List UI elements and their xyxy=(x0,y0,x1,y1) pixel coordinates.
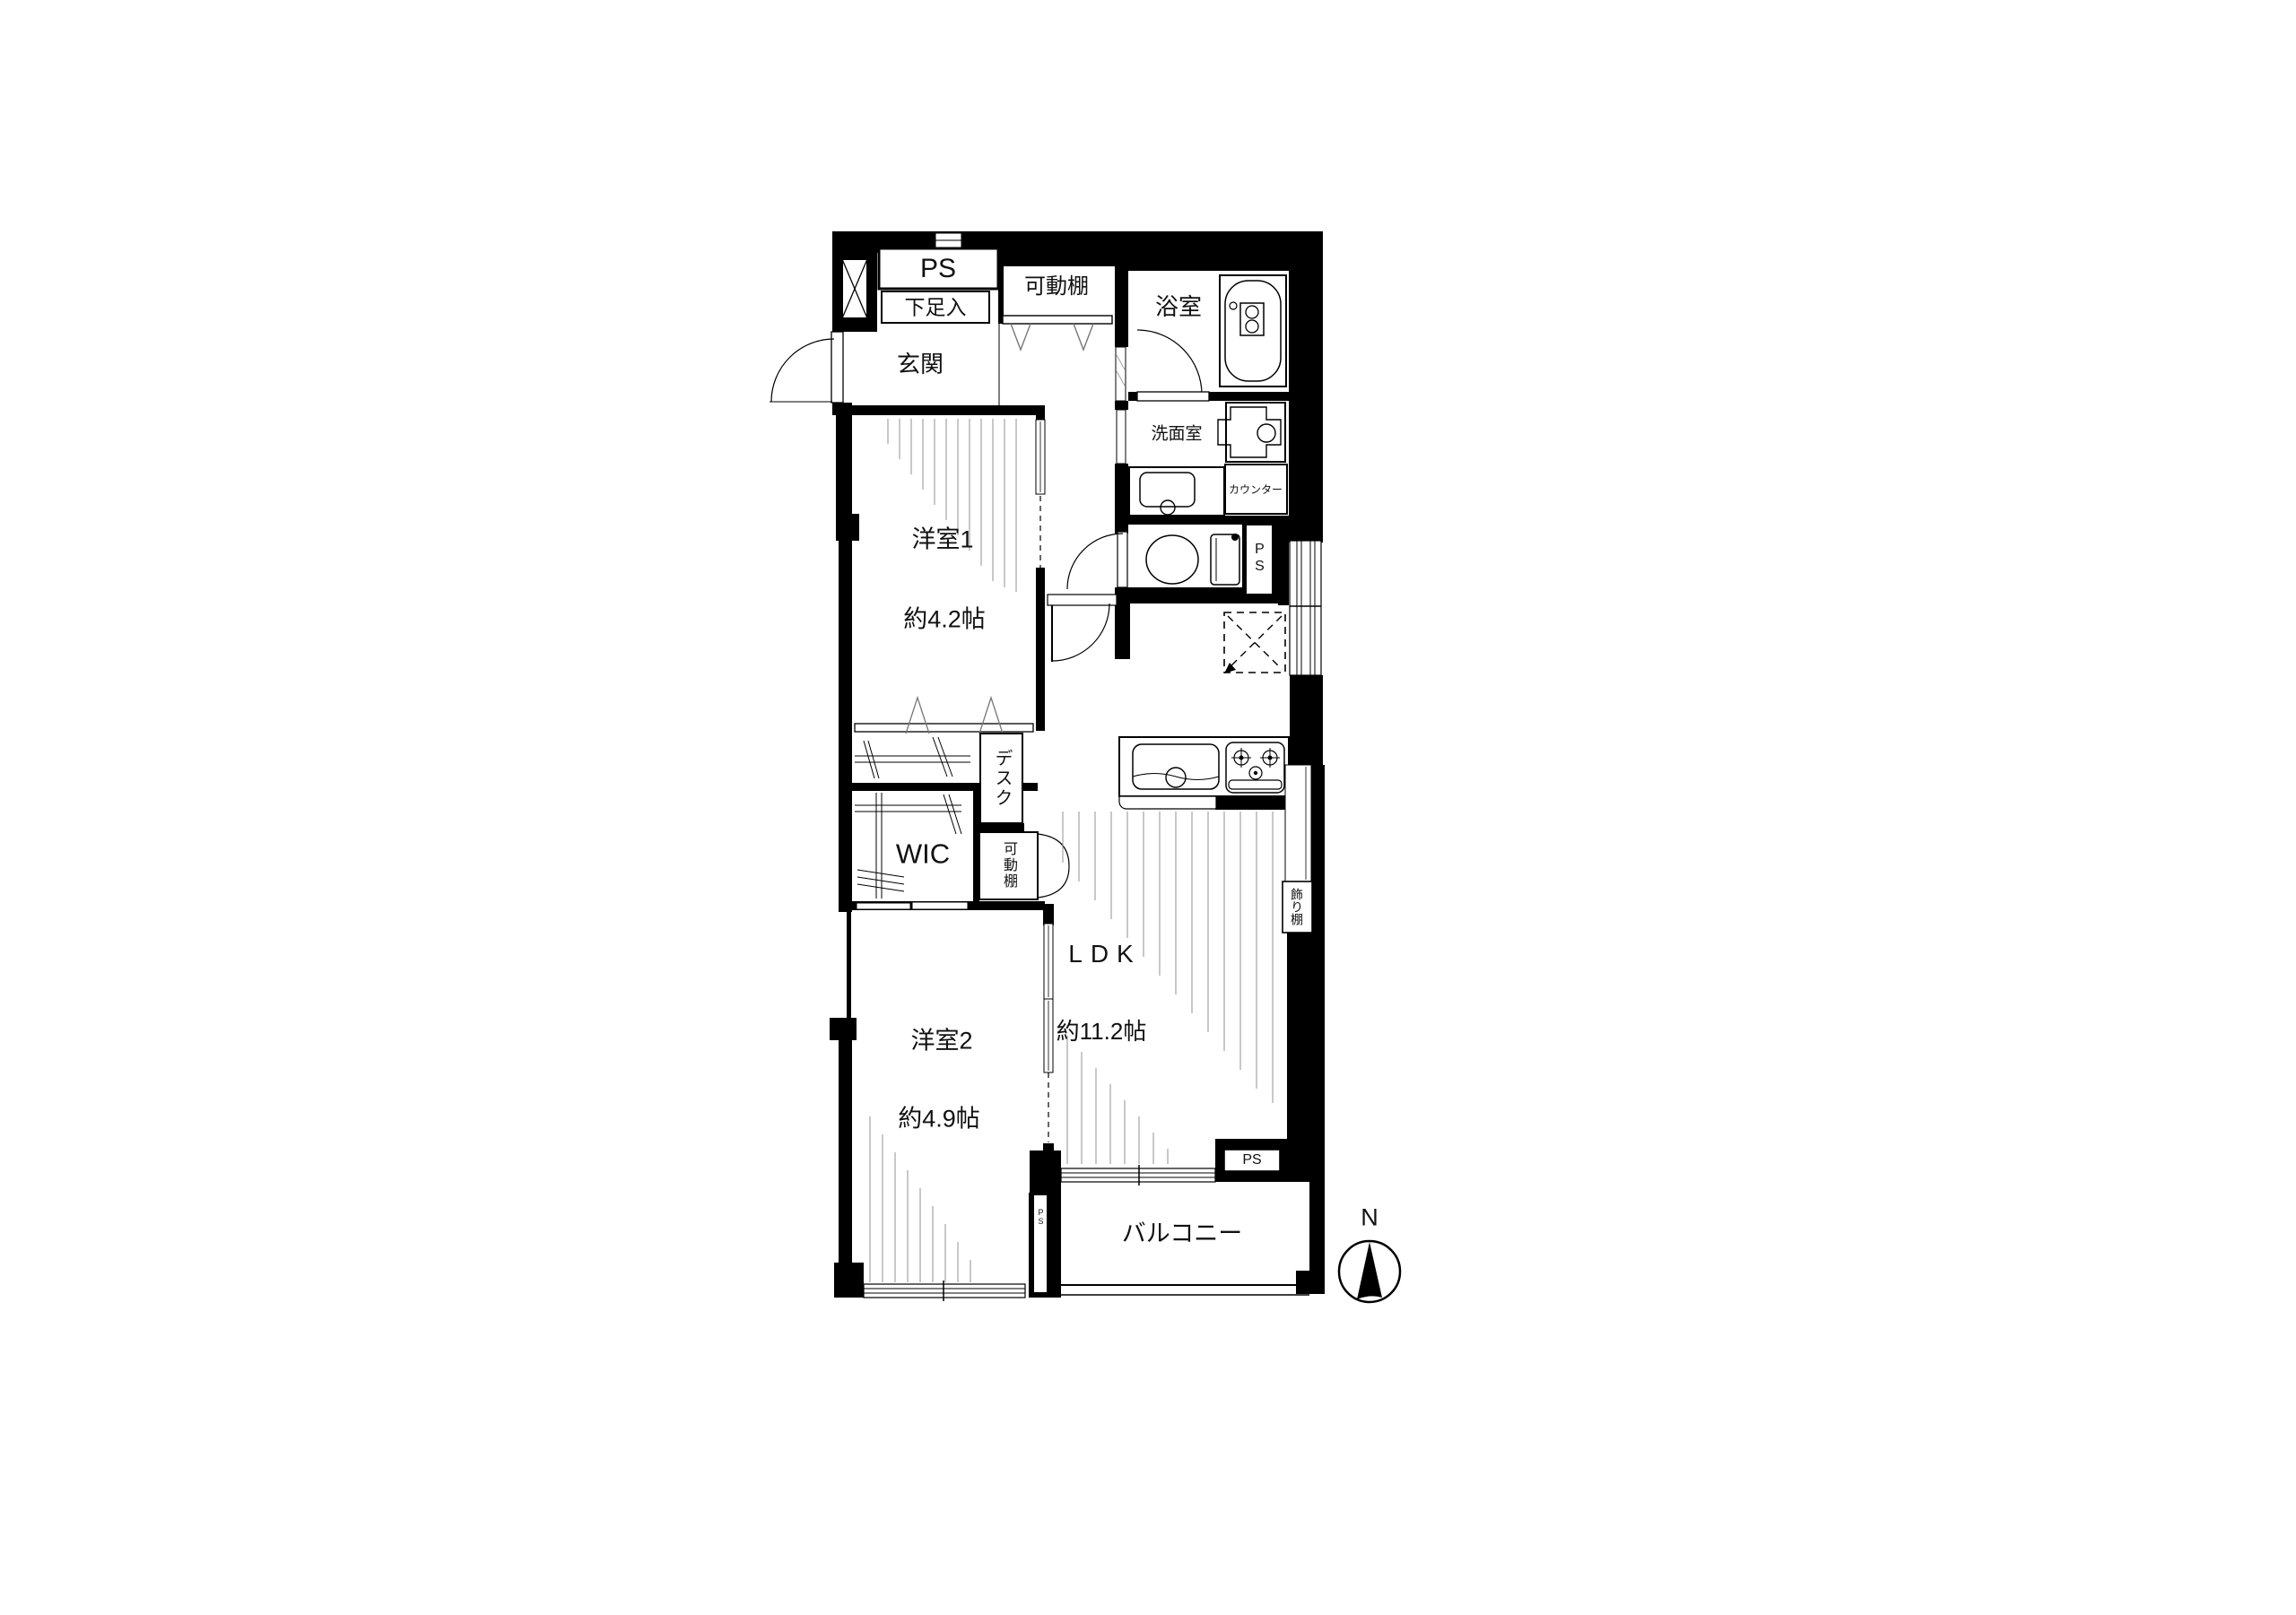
label-movable-shelf-2: 可動棚 xyxy=(1001,841,1015,890)
refrigerator-space xyxy=(1224,612,1285,673)
label-ps-ldk: PS xyxy=(1242,1153,1261,1168)
label-bathroom: 浴室 xyxy=(1155,295,1202,318)
ldk-floor-hatch xyxy=(1063,812,1273,1164)
label-ps-toilet: PS xyxy=(1252,542,1266,576)
label-wic: WIC xyxy=(896,840,950,868)
toilet-door xyxy=(1067,532,1127,589)
label-ps-column: PS xyxy=(1037,1208,1045,1226)
room2-floor-hatch xyxy=(870,1116,970,1282)
label-room2-size: 約4.9帖 xyxy=(898,1107,980,1132)
top-wall-vent xyxy=(935,233,961,247)
label-compass-north: N xyxy=(1361,1206,1378,1230)
label-ldk-size: 約11.2帖 xyxy=(1057,1020,1147,1043)
label-room1-size: 約4.2帖 xyxy=(903,608,986,632)
washing-machine-pan xyxy=(1218,403,1285,462)
label-display-shelf: 飾り棚 xyxy=(1291,888,1303,925)
movable-shelf-2-niche xyxy=(979,832,1069,899)
label-ps-top: PS xyxy=(920,256,956,282)
floor-plan-canvas: PS 下足入 玄関 可動棚 浴室 洗面室 カウンター PS 洋室1 約4.2帖 … xyxy=(0,0,2296,1615)
toilet-fixture xyxy=(1146,534,1239,585)
right-wall-window xyxy=(1290,541,1321,675)
hall-closet-bifold-door xyxy=(1003,316,1112,350)
compass-icon xyxy=(1339,1241,1400,1302)
floor-plan-drawing xyxy=(0,0,2296,1615)
balcony-railing xyxy=(1061,1285,1309,1295)
label-desk: デスク xyxy=(993,749,1011,808)
ldk-door xyxy=(1048,595,1117,662)
room2-ldk-partition xyxy=(1044,924,1053,1142)
label-room2-name: 洋室2 xyxy=(910,1029,972,1054)
vanity-sink xyxy=(1129,467,1224,516)
room2-window xyxy=(864,1281,1025,1301)
label-ldk-name: LDK xyxy=(1068,942,1141,967)
label-shoe-cabinet: 下足入 xyxy=(905,298,967,318)
label-balcony: バルコニー xyxy=(1122,1222,1242,1246)
entrance-door xyxy=(770,324,999,405)
room1-floor-hatch xyxy=(888,419,1016,592)
bathroom-door xyxy=(1137,330,1209,401)
label-movable-shelf-top: 可動棚 xyxy=(1024,276,1089,298)
pillar-box xyxy=(832,251,877,332)
label-counter: カウンター xyxy=(1229,484,1283,495)
bathtub xyxy=(1220,275,1286,386)
label-washroom: 洗面室 xyxy=(1151,426,1202,443)
ldk-balcony-window xyxy=(1061,1165,1215,1185)
label-entrance: 玄関 xyxy=(897,352,944,376)
label-room1-name: 洋室1 xyxy=(911,528,973,552)
room1-sliding-door xyxy=(1036,420,1045,568)
